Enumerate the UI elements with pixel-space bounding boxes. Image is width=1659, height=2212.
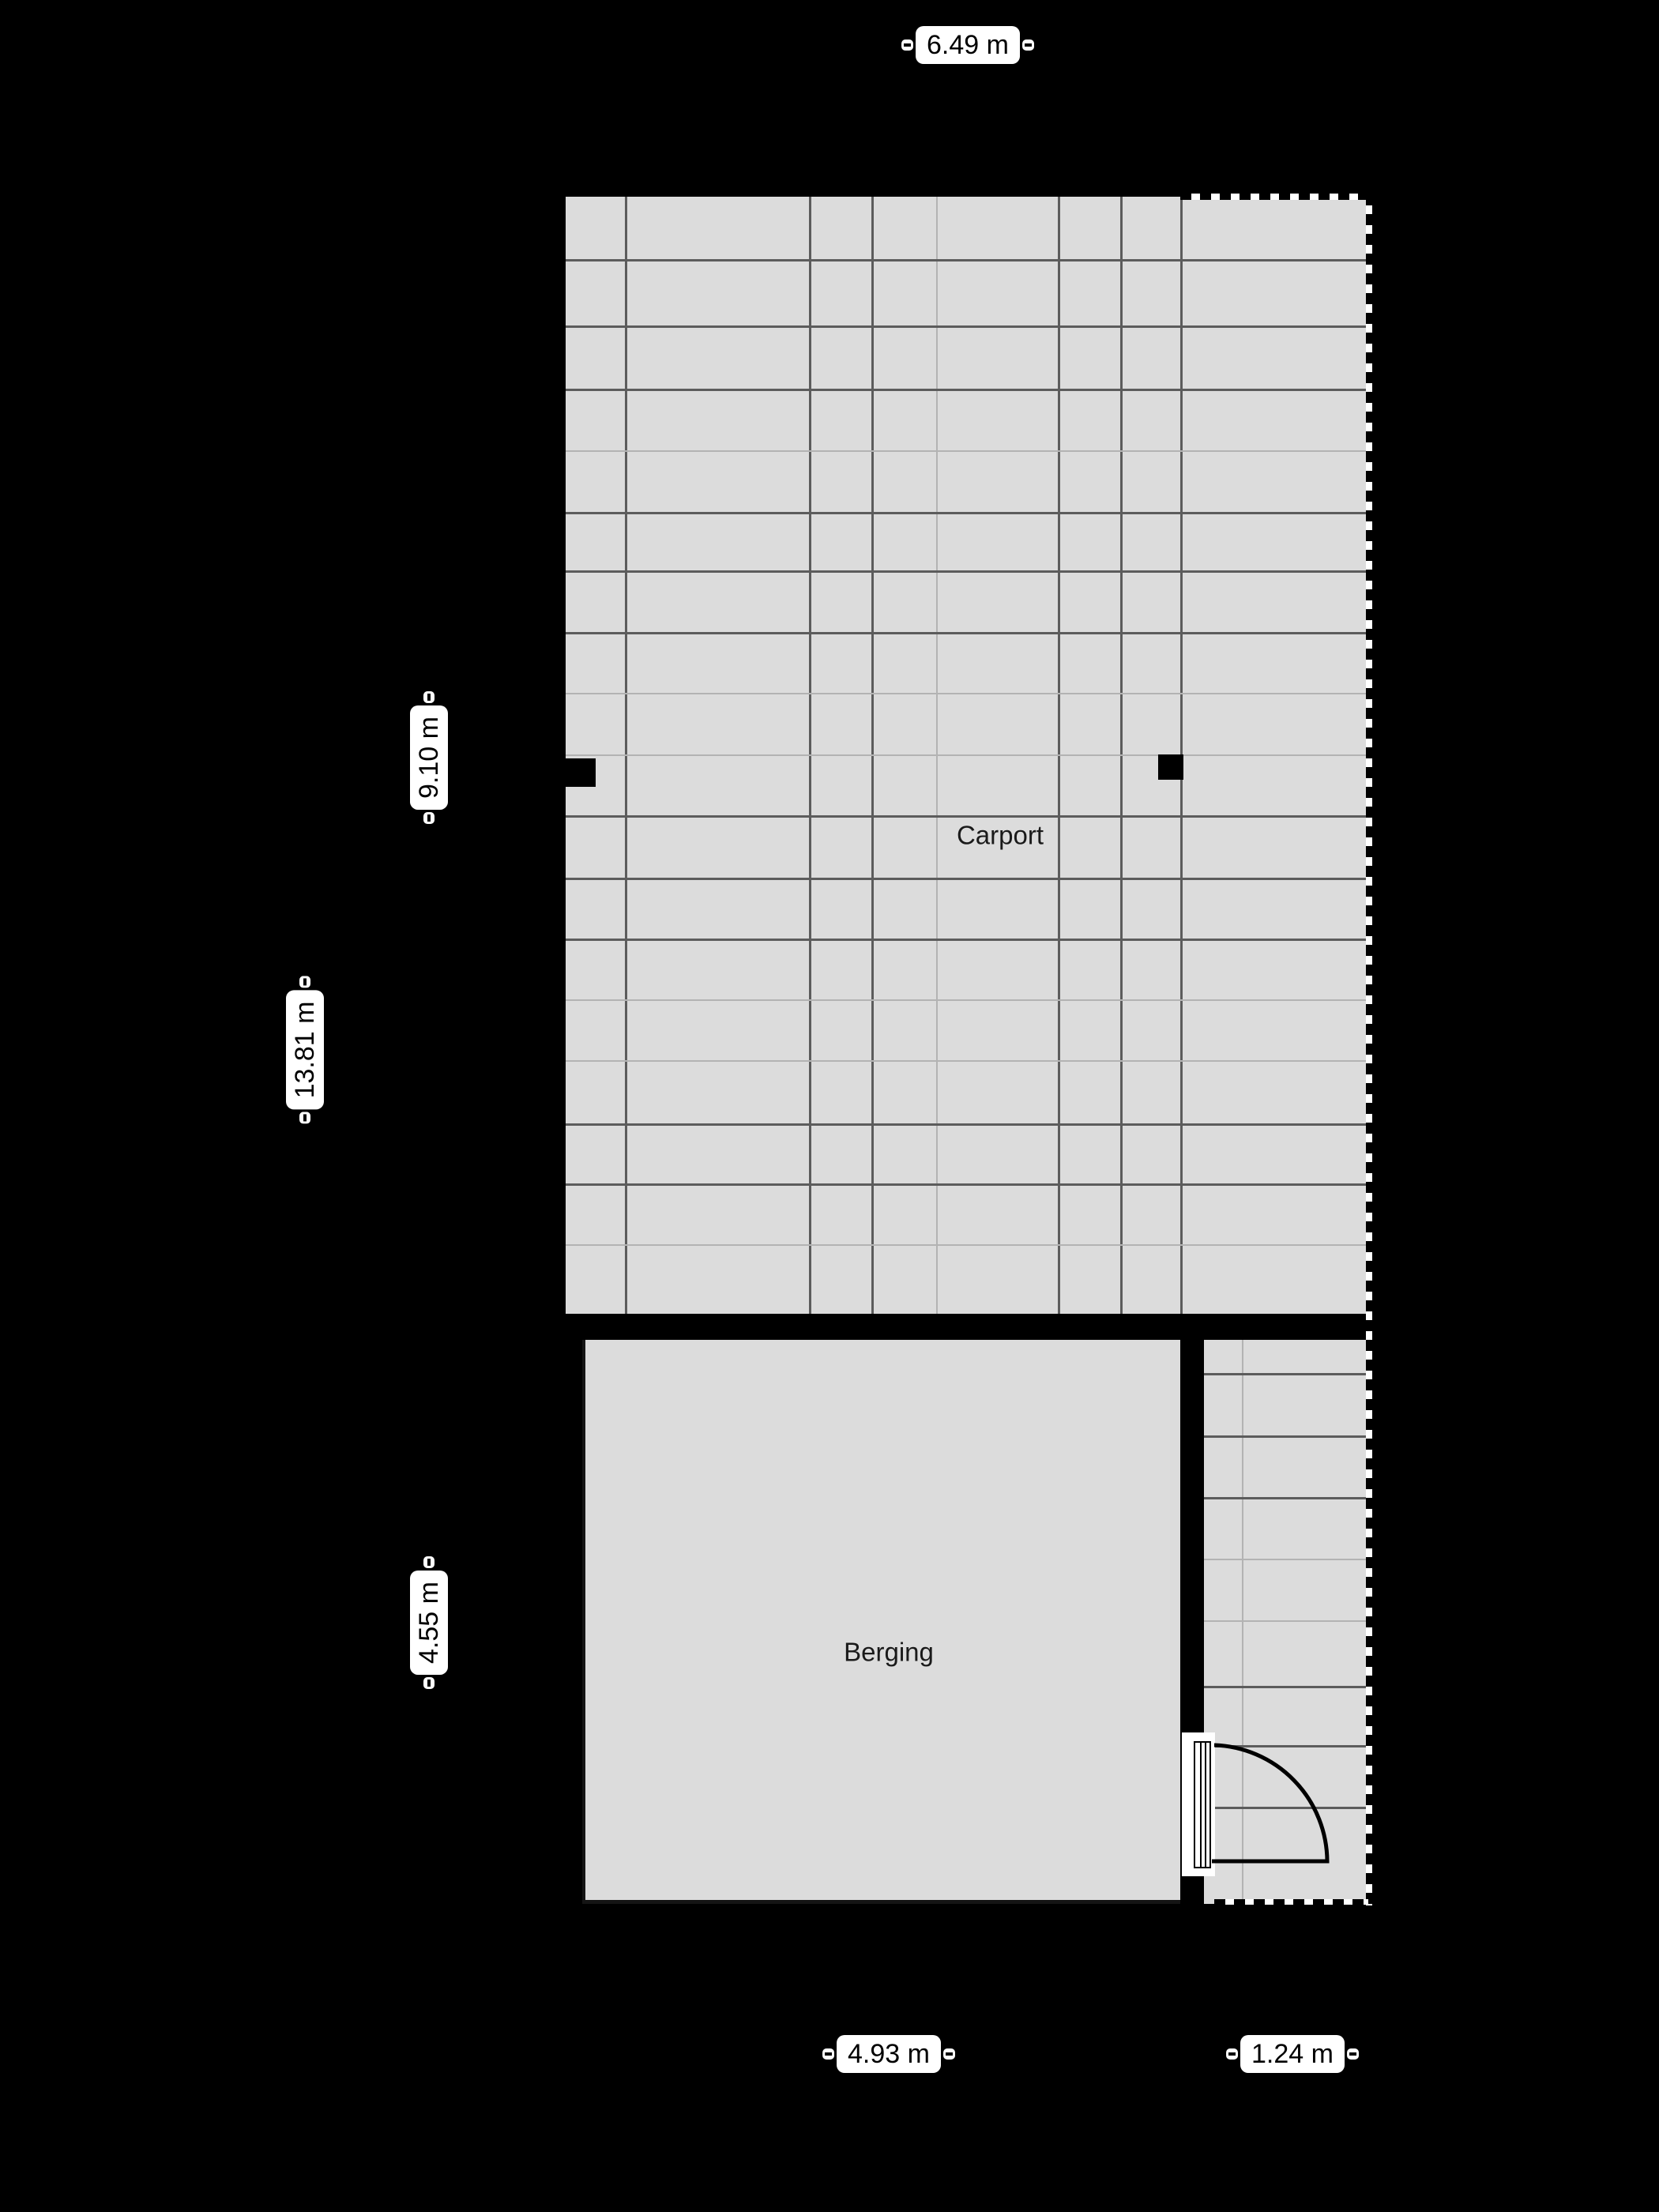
grid-line <box>566 1123 1368 1126</box>
open-boundary-right-dashed <box>1366 194 1372 1905</box>
open-boundary-top-dashed <box>1180 194 1368 200</box>
grid-line <box>566 632 1368 634</box>
berging-floor <box>582 1340 1180 1904</box>
grid-line <box>566 754 1368 756</box>
dimension-label-berging-width: 4.93 m <box>837 2035 941 2073</box>
grid-line <box>566 878 1368 880</box>
grid-line <box>566 450 1368 452</box>
dimension-label-total-width: 6.49 m <box>916 26 1020 64</box>
carport-room-label: Carport <box>957 822 1044 848</box>
dimension-label-total-height: 13.81 m <box>286 991 324 1110</box>
wall-berging-top <box>566 1314 1204 1340</box>
berging-room-label: Berging <box>844 1639 934 1665</box>
dimension-label-strip-width: 1.24 m <box>1240 2035 1345 2073</box>
wall-berging-right-upper <box>1180 1340 1204 1732</box>
grid-line <box>566 512 1368 514</box>
door-swing-arc <box>1204 1734 1338 1872</box>
grid-line <box>566 999 1368 1001</box>
grid-line <box>566 389 1368 391</box>
grid-line <box>1204 1620 1368 1622</box>
carport-post-right <box>1158 754 1183 780</box>
dimension-label-berging-height: 4.55 m <box>410 1571 448 1675</box>
grid-line <box>1204 1435 1368 1438</box>
grid-line <box>1204 1686 1368 1688</box>
grid-line <box>566 259 1368 261</box>
grid-line <box>566 1244 1368 1246</box>
floorplan-canvas: Carport Berging 6.49 m 9.10 m 13.81 m 4.… <box>0 0 1659 2212</box>
grid-line <box>1204 1559 1368 1560</box>
grid-line <box>566 693 1368 694</box>
grid-line <box>566 570 1368 573</box>
dimension-label-carport-height: 9.10 m <box>410 705 448 810</box>
grid-line <box>566 325 1368 328</box>
wall-berging-right-lower <box>1180 1876 1204 1905</box>
grid-line <box>1204 1497 1368 1499</box>
grid-line <box>566 1183 1368 1186</box>
grid-line <box>566 1060 1368 1062</box>
carport-post-left <box>566 758 596 787</box>
grid-line <box>566 815 1368 818</box>
open-boundary-bottom-dashed <box>1214 1899 1368 1905</box>
carport-floor <box>566 197 1368 1314</box>
grid-line <box>566 939 1368 941</box>
grid-line <box>1204 1373 1368 1375</box>
